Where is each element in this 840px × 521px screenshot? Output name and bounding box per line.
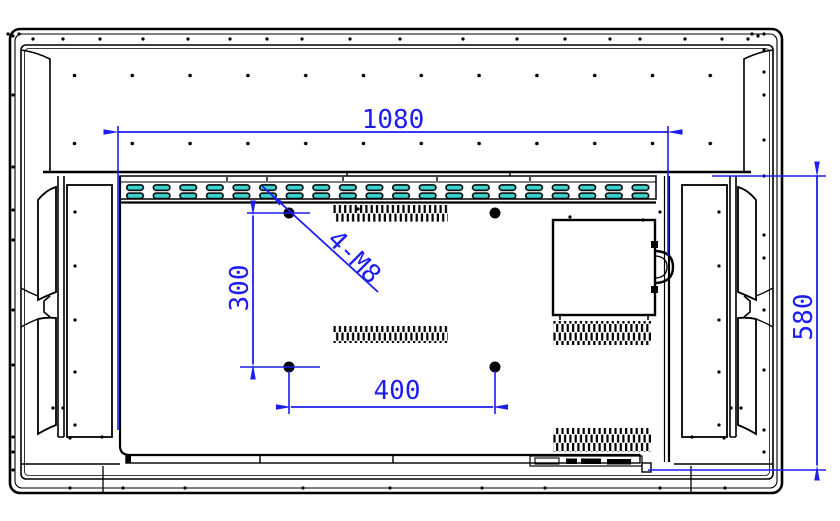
top-band-corner-seam	[21, 50, 50, 172]
drawing-canvas: 1080 580 300 400 4-M8	[0, 0, 840, 521]
vent-strip-ticks	[227, 177, 530, 181]
technical-drawing-rear-view: 1080 580 300 400 4-M8	[0, 0, 840, 521]
dimension-annotations: 1080 580 300 400 4-M8	[118, 105, 826, 470]
connector-port-2	[566, 459, 577, 465]
label-overall-height: 580	[789, 294, 819, 341]
speaker-neck	[44, 296, 50, 317]
label-vesa-horizontal: 400	[374, 376, 421, 406]
wall-neck-curves	[21, 288, 38, 327]
vesa-hole-top-right	[490, 208, 501, 219]
vent-hatch-upper	[333, 205, 448, 222]
side-rib	[58, 176, 64, 437]
speaker-top	[38, 187, 56, 300]
vent-hatch-right-upper	[553, 321, 651, 345]
label-vesa-vertical: 300	[225, 265, 255, 312]
label-mount-holes: 4-M8	[321, 225, 386, 290]
handle-inner	[656, 256, 667, 278]
speaker-bottom	[38, 318, 56, 434]
handle-mount-bottom	[651, 286, 658, 293]
handle-mount-top	[651, 241, 658, 248]
vent-strip-slots	[126, 184, 650, 200]
label-overall-width: 1080	[362, 105, 425, 135]
vesa-hole-bottom-right	[490, 362, 501, 373]
electronics-box	[553, 220, 655, 315]
vent-hatch-middle	[333, 326, 448, 343]
side-panel-dots	[53, 212, 102, 438]
vent-hatch-right-lower	[553, 428, 651, 452]
connector-port-3	[581, 459, 601, 465]
panel-bottom-dividers	[260, 455, 393, 463]
side-panel	[67, 185, 112, 437]
connector-port-4	[607, 459, 631, 465]
housing-linework	[8, 29, 782, 493]
panel-bottom-endcap	[126, 456, 131, 463]
